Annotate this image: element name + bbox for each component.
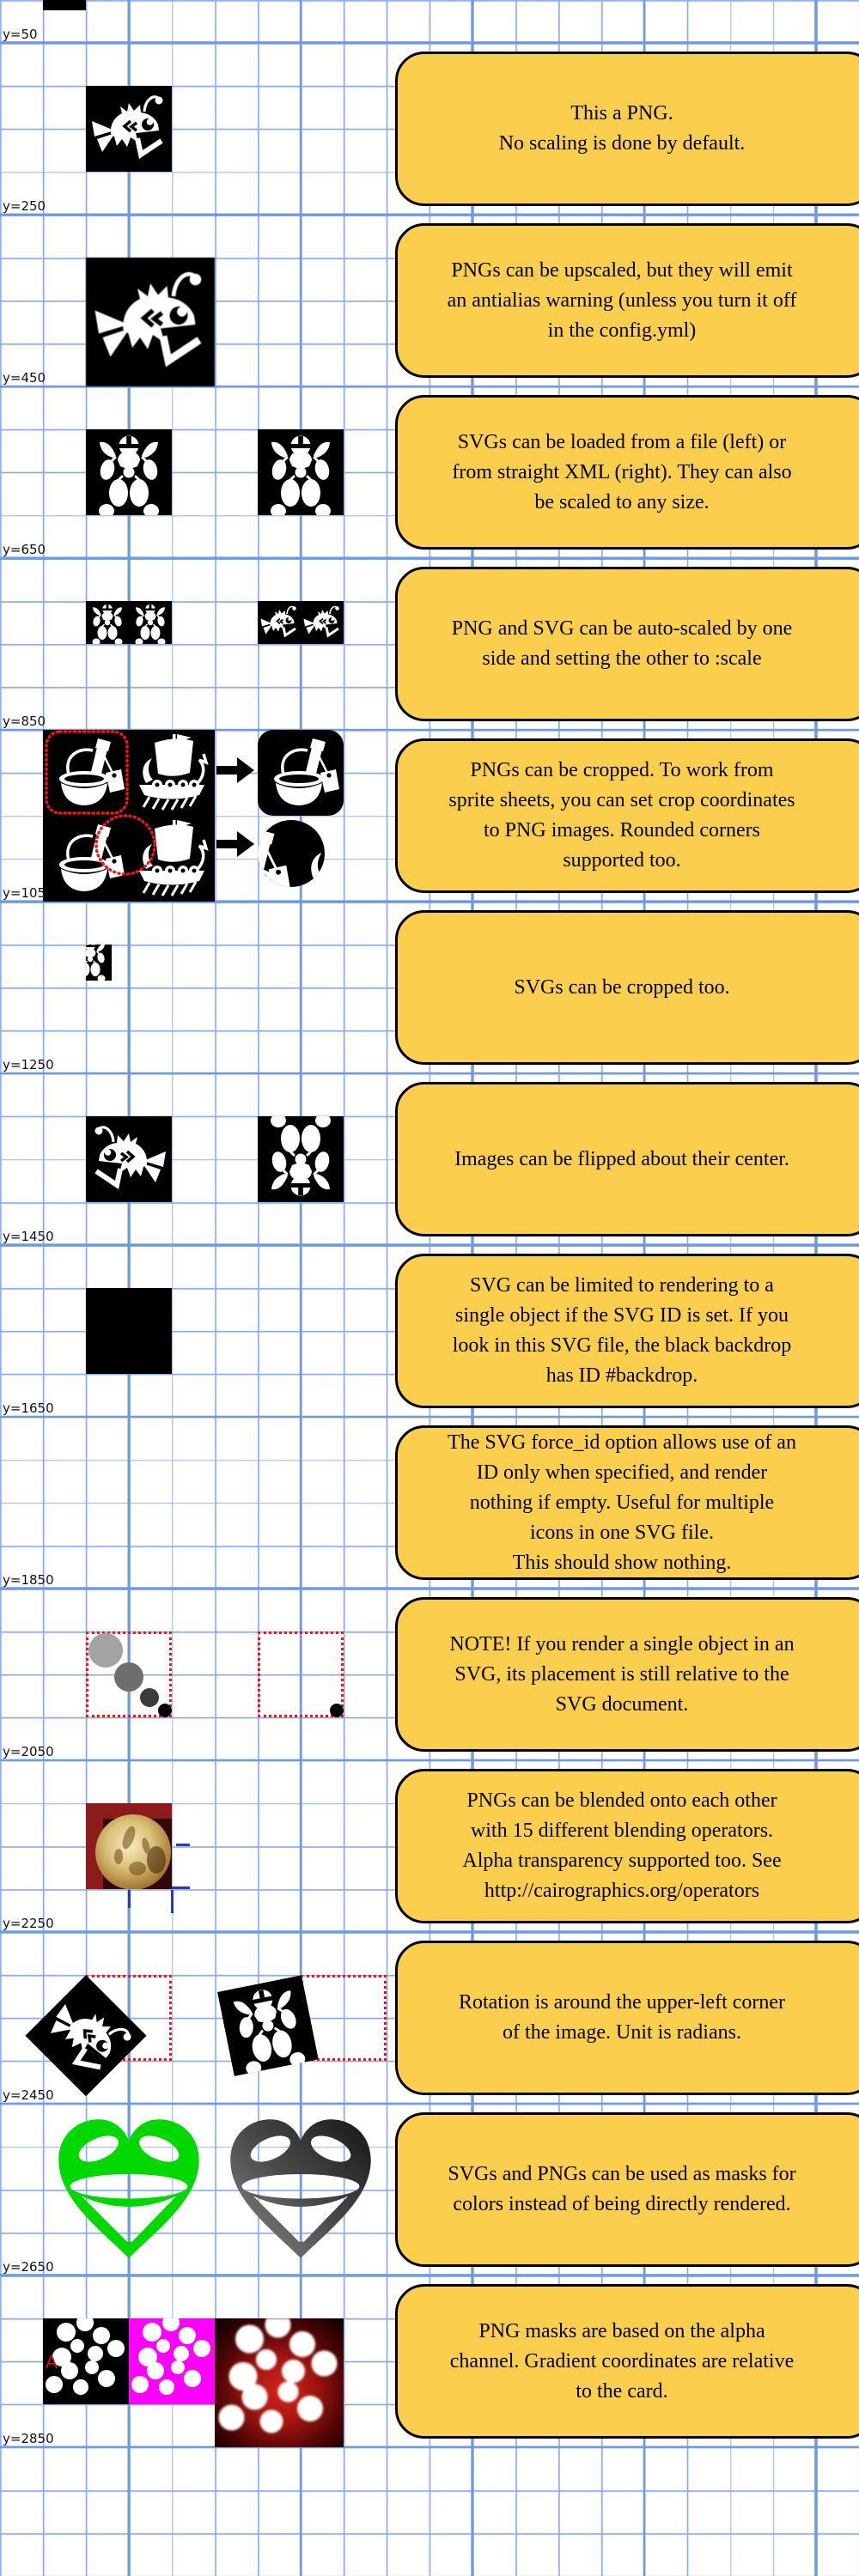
frog-heart-icon-green-mask xyxy=(47,2108,210,2271)
grid-y-label: y=2250 xyxy=(3,1915,54,1932)
showcase-sheet: { "page": {"width": 1000, "height": 3000… xyxy=(0,0,859,2576)
note-panel-png: This a PNG. No scaling is done by defaul… xyxy=(395,52,859,206)
cropped-amphora-rounded-tile xyxy=(258,730,344,816)
cropped-circle-tile xyxy=(258,820,325,887)
note-panel-placement: NOTE! If you render a single object in a… xyxy=(395,1597,859,1752)
note-panel-blend: PNGs can be blended onto each other with… xyxy=(395,1769,859,1923)
grid-y-label: y=450 xyxy=(3,369,46,386)
angler-fish-strip-autoscaled xyxy=(258,601,344,644)
angler-fish-icon-flipped-horizontal xyxy=(86,1116,172,1202)
sprite-sheet-amphora-ship xyxy=(43,730,215,902)
angler-fish-icon-upscaled xyxy=(86,258,215,386)
note-panel-text: SVGs and PNGs can be used as masks for c… xyxy=(411,2160,832,2220)
arrow-right-icon xyxy=(216,756,254,785)
note-panel-flip: Images can be flipped about their center… xyxy=(395,1082,859,1236)
note-panel-svg-load: SVGs can be loaded from a file (left) or… xyxy=(395,395,859,550)
robot-golem-icon-cropped xyxy=(86,945,129,987)
robot-golem-icon-flipped-vertical xyxy=(258,1116,344,1202)
note-panel-text: PNGs can be cropped. To work from sprite… xyxy=(411,756,832,876)
robot-golem-strip-autoscaled xyxy=(86,601,172,644)
grid-y-label: y=2850 xyxy=(3,2430,54,2447)
blend-artifact-tick xyxy=(171,1890,174,1913)
note-panel-text: SVG can be limited to rendering to a sin… xyxy=(411,1271,832,1391)
robot-golem-icon-xml xyxy=(258,429,344,515)
note-panel-text: The SVG force_id option allows use of an… xyxy=(411,1428,832,1578)
spot-mask-gradient-tile xyxy=(215,2318,344,2447)
note-panel-text: This a PNG. No scaling is done by defaul… xyxy=(411,99,832,159)
arrow-right-icon xyxy=(216,829,254,859)
angler-fish-icon xyxy=(86,86,172,172)
note-panel-text: PNG and SVG can be auto-scaled by one si… xyxy=(411,614,832,674)
note-panel-autoscale: PNG and SVG can be auto-scaled by one si… xyxy=(395,567,859,721)
svg-backdrop-square xyxy=(86,1288,172,1374)
note-panel-text: Rotation is around the upper-left corner… xyxy=(411,1988,832,2048)
note-panel-text: Images can be flipped about their center… xyxy=(411,1145,832,1175)
note-panel-text: PNG masks are based on the alpha channel… xyxy=(411,2317,832,2407)
grid-y-label: y=1650 xyxy=(3,1400,54,1417)
grid-y-label: y=2450 xyxy=(3,2087,54,2104)
note-panel-png-crop: PNGs can be cropped. To work from sprite… xyxy=(395,738,859,893)
robot-golem-icon-file xyxy=(86,429,172,515)
cropped-image-top-sliver xyxy=(43,0,86,10)
spot-mask-magenta-tile xyxy=(129,2318,215,2404)
grid-y-label: y=1450 xyxy=(3,1228,54,1245)
blend-artifact-tick xyxy=(172,1886,190,1889)
grid-y-label: y=1850 xyxy=(3,1571,54,1589)
grid-y-label: y=50 xyxy=(3,26,38,43)
note-panel-upscale: PNGs can be upscaled, but they will emit… xyxy=(395,223,859,378)
grid-y-label: y=1250 xyxy=(3,1056,54,1073)
placement-circles xyxy=(69,1614,361,1726)
note-panel-svg-id: SVG can be limited to rendering to a sin… xyxy=(395,1254,859,1408)
note-panel-text: PNGs can be upscaled, but they will emit… xyxy=(411,256,832,346)
frog-heart-icon-gradient-mask xyxy=(219,2108,382,2271)
grid-y-label: y=650 xyxy=(3,541,46,558)
robot-golem-icon-rotated xyxy=(217,1975,319,2076)
note-panel-png-masks: PNG masks are based on the alpha channel… xyxy=(395,2284,859,2439)
blend-artifact-tick xyxy=(128,1890,131,1908)
mask-letter-a: A xyxy=(46,2353,58,2373)
note-panel-text: SVGs can be loaded from a file (left) or… xyxy=(411,428,832,518)
note-panel-text: SVGs can be cropped too. xyxy=(411,973,832,1003)
note-panel-text: PNGs can be blended onto each other with… xyxy=(411,1786,832,1906)
blend-red-square-with-planet xyxy=(86,1803,172,1889)
note-panel-svg-crop: SVGs can be cropped too. xyxy=(395,910,859,1065)
grid-y-label: y=2650 xyxy=(3,2258,54,2275)
grid-y-label: y=2050 xyxy=(3,1743,54,1760)
note-panel-force-id: The SVG force_id option allows use of an… xyxy=(395,1425,859,1580)
blend-artifact-tick xyxy=(176,1844,190,1846)
grid-y-label: y=850 xyxy=(3,713,46,730)
note-panel-text: NOTE! If you render a single object in a… xyxy=(411,1630,832,1720)
note-panel-masks: SVGs and PNGs can be used as masks for c… xyxy=(395,2112,859,2267)
note-panel-rotation: Rotation is around the upper-left corner… xyxy=(395,1941,859,2095)
grid-y-label: y=250 xyxy=(3,197,46,215)
